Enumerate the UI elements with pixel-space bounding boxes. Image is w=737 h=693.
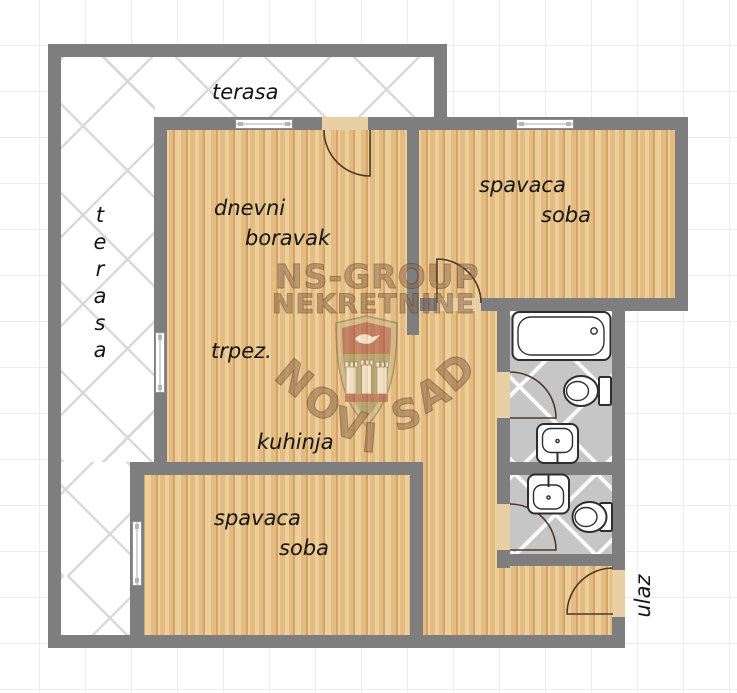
label-bedroom-bottom-line2: soba xyxy=(279,536,329,560)
bedroom-top-door-opening xyxy=(437,298,481,311)
label-terrace-top: terasa xyxy=(212,80,278,104)
label-terrace-side-letter: a xyxy=(82,283,118,310)
label-living-line1: dnevni xyxy=(214,196,285,220)
label-dining: trpez. xyxy=(211,339,272,363)
window-living-top xyxy=(235,119,293,129)
bathroom-floor xyxy=(510,311,612,462)
wall-outer-top xyxy=(48,44,446,57)
window-bedroom-top xyxy=(516,119,574,129)
label-bedroom-bottom-line1: spavaca xyxy=(214,506,301,530)
bathroom-door-opening xyxy=(497,372,510,418)
wc-door-opening xyxy=(497,504,510,550)
label-entrance: ulaz xyxy=(631,566,653,626)
wall-outer-left xyxy=(48,44,61,648)
wall-between-bathrooms xyxy=(497,462,625,475)
label-terrace-side-letter: s xyxy=(82,310,118,337)
wall-wc-bottom xyxy=(497,554,625,566)
terrace-door-opening xyxy=(322,117,368,130)
wall-living-left xyxy=(154,117,167,475)
label-terrace-side: terasa xyxy=(82,202,118,364)
window-bedroom-bottom-left xyxy=(132,521,142,586)
floor-plan: terasa terasa dnevni boravak spavaca sob… xyxy=(0,0,737,693)
wall-bedroom-top-right xyxy=(675,117,688,311)
label-terrace-side-letter: r xyxy=(82,256,118,283)
label-kitchen: kuhinja xyxy=(257,430,334,454)
label-bedroom-top-line2: soba xyxy=(541,203,591,227)
label-terrace-side-letter: t xyxy=(82,202,118,229)
window-living-left xyxy=(155,332,165,393)
wall-living-bedroom-divider xyxy=(407,117,419,335)
label-living-line2: boravak xyxy=(245,226,330,250)
terrace-floor-bottom-left xyxy=(61,462,130,635)
wall-bedroom-bottom-top xyxy=(130,462,423,475)
wall-bedroom-bottom-right xyxy=(410,462,423,648)
label-terrace-side-letter: a xyxy=(82,337,118,364)
wc-floor xyxy=(510,475,612,554)
label-terrace-side-letter: e xyxy=(82,229,118,256)
entrance-door-opening xyxy=(612,570,625,617)
label-bedroom-top-line1: spavaca xyxy=(479,173,566,197)
